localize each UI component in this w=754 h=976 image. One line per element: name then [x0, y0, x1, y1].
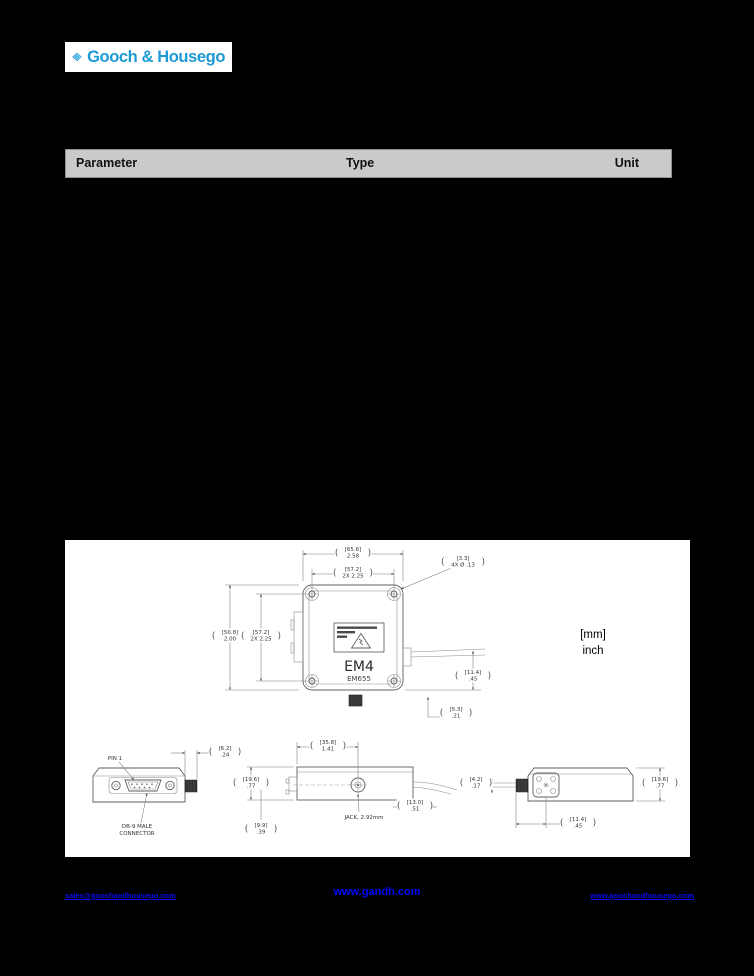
- rf-jack-top-view: [349, 695, 362, 706]
- dim-inch-value: .51: [411, 807, 420, 813]
- dim-paren-close: ): [370, 569, 374, 579]
- dim-inch-value: 1.41: [322, 747, 334, 753]
- dim-mm-value: [19.6]: [243, 777, 260, 783]
- dim-paren-open: (: [209, 748, 213, 758]
- dim-inch-value: .21: [452, 714, 461, 720]
- dim-mm-value: [11.4]: [465, 670, 482, 676]
- dim-body-height-c: ()[19.6].77: [642, 776, 679, 790]
- dim-paren-open: (: [455, 672, 459, 682]
- dim-paren-open: (: [642, 779, 646, 789]
- dim-paren-close: ): [266, 779, 270, 789]
- product-label: [334, 623, 384, 652]
- dim-inch-value: .45: [469, 677, 478, 683]
- label-text-bar: [337, 636, 347, 638]
- dim-inch-value: .24: [221, 753, 230, 759]
- dim-paren-open: (: [397, 802, 401, 812]
- dim-mm-value: [11.4]: [570, 817, 587, 823]
- dim-jack-position: ()[35.8]1.41: [310, 739, 347, 753]
- dim-body-height-b: ()[19.6].77: [233, 776, 270, 790]
- label-text-bar: [337, 631, 355, 633]
- dim-hole-spacing-h: ()[57.2]2X 2.25: [333, 566, 374, 580]
- dim-paren-close: ): [274, 825, 278, 835]
- prism-diamond-icon: [72, 46, 82, 68]
- fiber-boot-a: [185, 780, 197, 792]
- dim-paren-open: (: [441, 558, 445, 568]
- column-header-type: Type: [346, 156, 374, 170]
- end-view-db9: PIN 1 DB-9 MALE CONNECTOR ()[6.2].24: [93, 745, 242, 838]
- dim-inch-value: 4X Ø .13: [451, 562, 475, 569]
- dim-mm-value: [57.2]: [345, 567, 362, 573]
- dim-inch-value: .77: [247, 784, 256, 790]
- db9-label-line2: CONNECTOR: [119, 831, 154, 837]
- dim-paren-open: (: [460, 779, 464, 789]
- dim-paren-open: (: [440, 709, 444, 719]
- optical-connector-plate: [533, 773, 559, 797]
- dim-paren-close: ): [238, 748, 242, 758]
- jack-label: JACK, 2.92mm: [343, 815, 383, 821]
- dim-mm-value: [57.2]: [253, 630, 270, 636]
- side-view-jack: JACK, 2.92mm ()[35.8]1.41 ()[19.6].77 ()…: [233, 739, 457, 836]
- model-text: EM4: [344, 659, 374, 675]
- dim-hole-diameter: ()[3.3]4X Ø .13: [441, 555, 485, 569]
- legend-mm: [mm]: [580, 629, 606, 641]
- dim-paren-open: (: [333, 569, 337, 579]
- mechanical-drawing: EM4 EM655 ()[65.6]2.58 ()[57.2]2X 2.25 (…: [65, 540, 690, 857]
- brand-name: Gooch & Housego: [87, 48, 225, 67]
- submodel-text: EM655: [347, 675, 371, 683]
- dim-mm-value: [6.2]: [218, 746, 231, 752]
- dim-paren-close: ): [481, 558, 485, 568]
- dim-fiber-offset: ()[11.4].45: [455, 669, 492, 683]
- dim-paren-close: ): [675, 779, 679, 789]
- dim-mm-value: [19.6]: [652, 777, 669, 783]
- dim-mm-value: [35.8]: [320, 740, 337, 746]
- dim-connector-position: ()[11.4].45: [560, 816, 597, 830]
- dim-paren-close: ): [469, 709, 473, 719]
- dim-paren-open: (: [233, 779, 237, 789]
- dim-jack-centerline: ()[9.9].39: [245, 822, 278, 836]
- fiber-pigtail-top: [403, 648, 485, 666]
- dim-paren-close: ): [278, 632, 282, 642]
- dim-mm-value: [4.2]: [469, 777, 482, 783]
- column-header-parameter: Parameter: [76, 156, 137, 170]
- dim-paren-close: ): [343, 742, 347, 752]
- pin1-label: PIN 1: [108, 756, 122, 762]
- dim-fiber-drop: ()[13.0].51: [397, 799, 434, 813]
- column-header-unit: Unit: [615, 156, 639, 170]
- rf-jack: [349, 776, 367, 794]
- dim-hole-spacing-v: ()[57.2]2X 2.25: [241, 629, 282, 643]
- dim-inch-value: 2X 2.25: [250, 637, 272, 643]
- dim-inch-value: .39: [257, 830, 266, 836]
- dim-mm-value: [13.0]: [407, 800, 424, 806]
- db9-side-profile: [286, 777, 297, 794]
- dim-paren-open: (: [245, 825, 249, 835]
- fiber-pigtail-b: [413, 782, 457, 794]
- dim-mm-value: [3.3]: [456, 556, 469, 562]
- dim-paren-close: ): [488, 672, 492, 682]
- dim-inch-value: .77: [656, 784, 665, 790]
- dim-paren-open: (: [335, 549, 339, 559]
- dim-paren-open: (: [241, 632, 245, 642]
- dim-paren-close: ): [593, 819, 597, 829]
- dim-paren-close: ): [368, 549, 372, 559]
- dim-boot-offset: ()[4.2].17: [460, 776, 493, 790]
- company-logo: Gooch & Housego: [65, 42, 232, 72]
- dim-inch-value: 2.00: [224, 637, 237, 643]
- db9-label-line1: DB-9 MALE: [122, 824, 153, 830]
- db9-connector: [112, 780, 174, 791]
- dim-boot-width: ()[6.2].24: [209, 745, 242, 759]
- dim-mm-value: [9.9]: [254, 823, 267, 829]
- dim-overall-width: ()[65.6]2.58: [335, 546, 372, 560]
- legend-inch: inch: [582, 645, 603, 657]
- fiber-boot-c: [516, 779, 528, 792]
- dim-mm-value: [5.3]: [449, 707, 462, 713]
- dim-paren-open: (: [212, 632, 216, 642]
- spec-table-header: Parameter Type Unit: [65, 149, 672, 178]
- label-text-bar: [337, 627, 377, 629]
- dim-paren-close: ): [430, 802, 434, 812]
- db9-top-profile: [291, 612, 303, 662]
- dim-paren-close: ): [489, 779, 493, 789]
- top-view: EM4 EM655 ()[65.6]2.58 ()[57.2]2X 2.25 (…: [212, 546, 492, 720]
- footer-website-right-link[interactable]: www.goochandhousego.com: [590, 891, 694, 900]
- dim-inch-value: 2X 2.25: [342, 574, 364, 580]
- dim-inch-value: 2.58: [347, 554, 360, 560]
- dim-mm-value: [65.6]: [345, 547, 362, 553]
- dim-inch-value: .17: [472, 784, 481, 790]
- dim-bottom-offset: ()[5.3].21: [440, 706, 473, 720]
- mechanical-drawing-panel: EM4 EM655 ()[65.6]2.58 ()[57.2]2X 2.25 (…: [65, 540, 690, 857]
- dim-inch-value: .45: [574, 824, 583, 830]
- side-view-fiber: ()[4.2].17 ()[19.6].77 ()[11.4].45: [460, 768, 679, 830]
- dim-paren-open: (: [560, 819, 564, 829]
- dim-mm-value: [50.8]: [222, 630, 239, 636]
- dim-paren-open: (: [310, 742, 314, 752]
